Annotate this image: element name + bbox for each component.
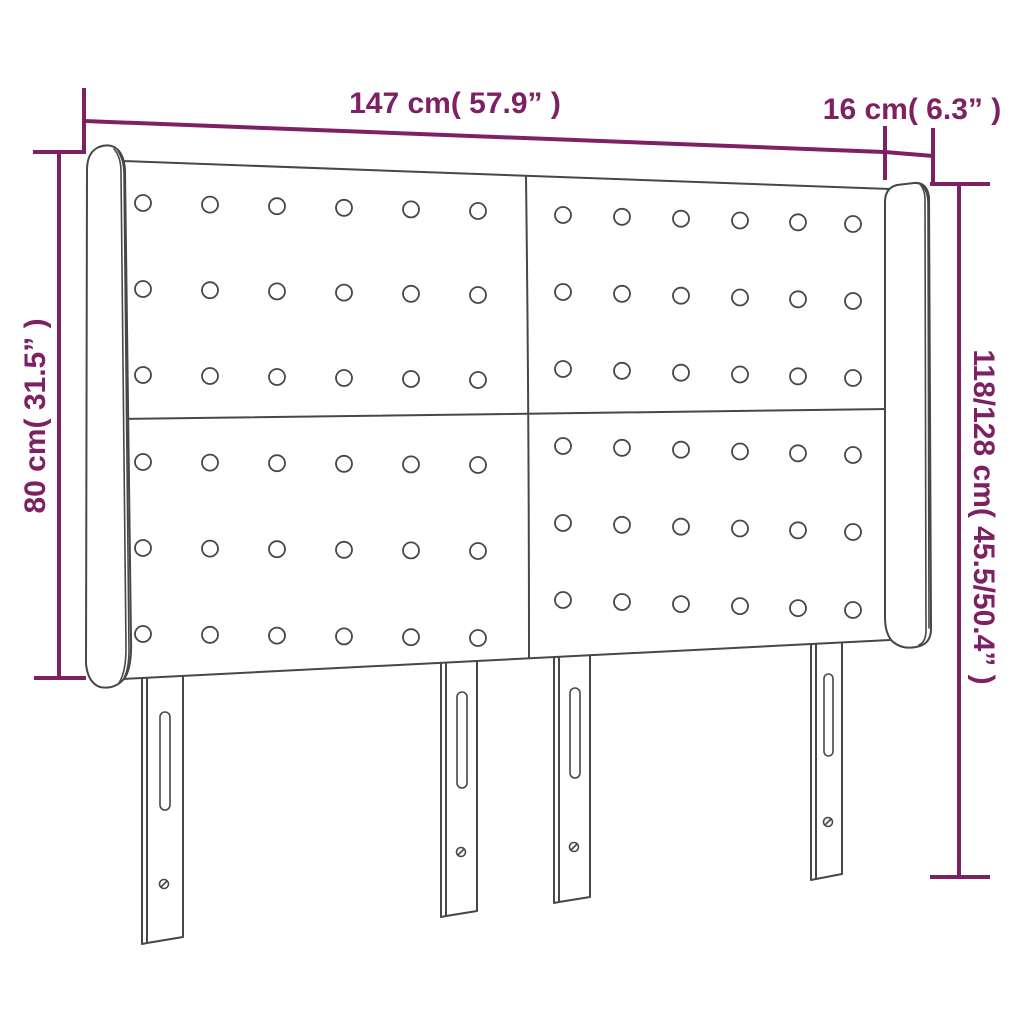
tufting-button: [470, 203, 486, 219]
tufting-button: [790, 368, 806, 384]
tufting-button: [403, 371, 419, 387]
tufting-button: [336, 285, 352, 301]
tufting-button: [845, 370, 861, 386]
tufting-button: [202, 627, 218, 643]
tufting-button: [614, 363, 630, 379]
tufting-button: [790, 445, 806, 461]
left-wing: [86, 145, 131, 687]
tufting-button: [790, 214, 806, 230]
tufting-button: [336, 542, 352, 558]
width-dimension-label: 147 cm( 57.9” ): [349, 87, 561, 120]
tufting-button: [135, 540, 151, 556]
tufting-button: [403, 456, 419, 472]
tufting-button: [135, 367, 151, 383]
depth-dimension-label: 16 cm( 6.3” ): [823, 93, 1001, 126]
headboard-panel: [122, 161, 890, 679]
leg-1: [142, 662, 183, 944]
tufting-button: [555, 438, 571, 454]
tufting-button: [614, 594, 630, 610]
tufting-button: [269, 198, 285, 214]
height-total-dimension-label: 118/128 cm( 45.5/50.4” ): [967, 349, 1000, 684]
tufting-button: [202, 197, 218, 213]
tufting-button: [673, 442, 689, 458]
tufting-button: [336, 628, 352, 644]
tufting-button: [202, 368, 218, 384]
tufting-button: [555, 284, 571, 300]
tufting-button: [673, 596, 689, 612]
tufting-button: [673, 211, 689, 227]
width-dimension-line: [84, 121, 885, 152]
tufting-button: [845, 447, 861, 463]
height-total-dimension: 118/128 cm( 45.5/50.4” ): [932, 184, 1000, 877]
tufting-button: [135, 454, 151, 470]
leg-4: [811, 640, 842, 880]
right-wing: [885, 183, 931, 648]
tufting-button: [790, 600, 806, 616]
tufting-button: [555, 207, 571, 223]
tufting-button: [202, 455, 218, 471]
tufting-button: [269, 283, 285, 299]
tufting-button: [470, 372, 486, 388]
tufting-button: [555, 592, 571, 608]
headboard-dimension-diagram: 147 cm( 57.9” ) 16 cm( 6.3” ) 80 cm( 31.…: [0, 0, 1024, 1024]
tufting-button: [790, 522, 806, 538]
tufting-button: [673, 365, 689, 381]
tufting-button: [336, 200, 352, 216]
tufting-button: [732, 213, 748, 229]
depth-dimension-line: [885, 152, 933, 156]
height-front-dimension-label: 80 cm( 31.5” ): [19, 318, 52, 513]
tufting-button: [269, 628, 285, 644]
tufting-button: [555, 515, 571, 531]
leg-2: [441, 653, 477, 917]
tufting-button: [403, 286, 419, 302]
leg-2-slot: [457, 692, 467, 788]
tufting-button: [135, 195, 151, 211]
tufting-button: [403, 629, 419, 645]
tufting-button: [845, 602, 861, 618]
depth-dimension: 16 cm( 6.3” ): [823, 93, 1001, 180]
tufting-button: [403, 201, 419, 217]
tufting-button: [470, 543, 486, 559]
tufting-button: [614, 517, 630, 533]
panel-face: [122, 161, 890, 679]
tufting-button: [790, 291, 806, 307]
tufting-button: [403, 542, 419, 558]
tufting-button: [614, 209, 630, 225]
tufting-button: [135, 626, 151, 642]
leg-1-slot: [160, 712, 170, 810]
leg-3: [554, 647, 590, 903]
tufting-button: [269, 455, 285, 471]
tufting-button: [269, 369, 285, 385]
tufting-button: [732, 521, 748, 537]
tufting-button: [135, 281, 151, 297]
right-wing-face: [885, 183, 931, 648]
tufting-button: [845, 216, 861, 232]
tufting-button: [269, 541, 285, 557]
tufting-button: [470, 287, 486, 303]
tufting-button: [732, 367, 748, 383]
tufting-button: [614, 286, 630, 302]
tufting-button: [845, 293, 861, 309]
tufting-button: [845, 524, 861, 540]
tufting-button: [202, 282, 218, 298]
tufting-button: [336, 370, 352, 386]
tufting-button: [470, 457, 486, 473]
tufting-button: [732, 444, 748, 460]
tufting-button: [202, 541, 218, 557]
tufting-button: [673, 288, 689, 304]
tufting-button: [470, 630, 486, 646]
height-front-dimension: 80 cm( 31.5” ): [19, 152, 84, 678]
tufting-button: [555, 361, 571, 377]
tufting-button: [673, 519, 689, 535]
tufting-button: [732, 598, 748, 614]
tufting-button: [336, 456, 352, 472]
leg-4-slot: [824, 674, 833, 756]
leg-3-slot: [570, 688, 580, 778]
tufting-button: [732, 290, 748, 306]
tufting-button: [614, 440, 630, 456]
